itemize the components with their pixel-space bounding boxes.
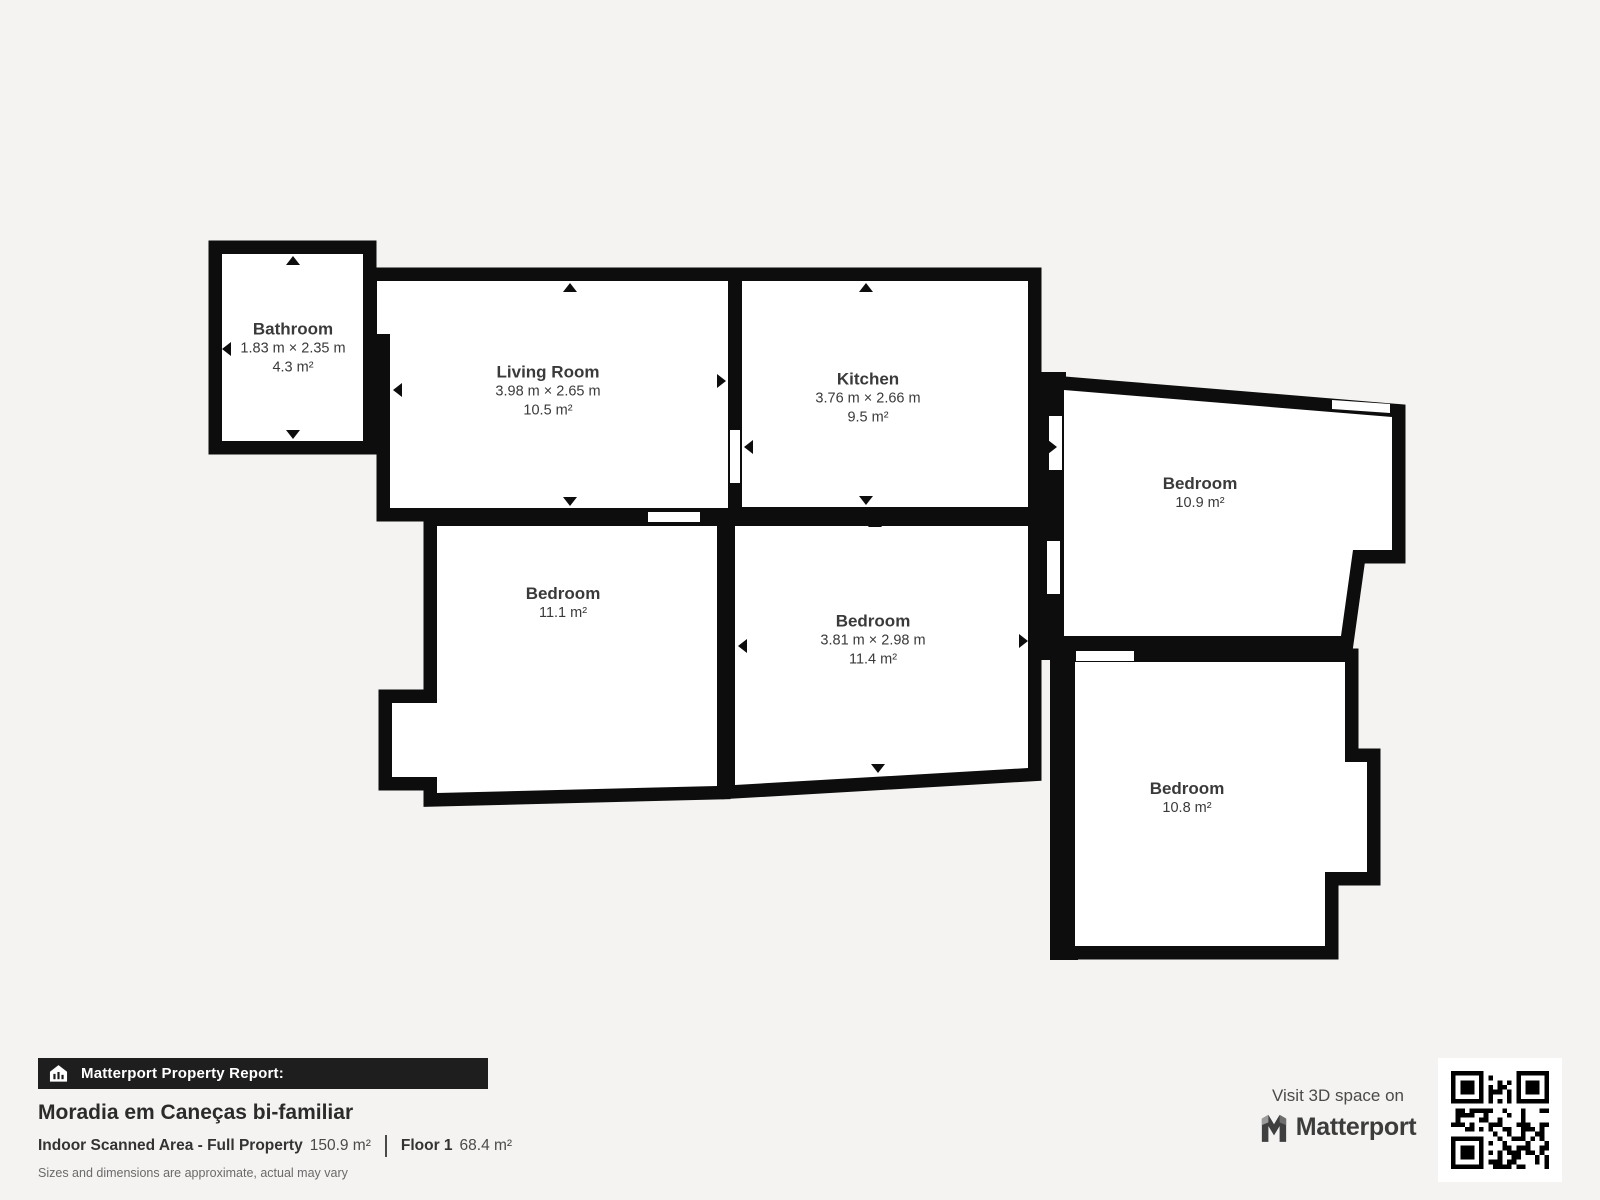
- brand-name: Matterport: [1296, 1113, 1417, 1142]
- room-name: Bedroom: [1163, 473, 1238, 494]
- room-area: 10.8 m²: [1150, 799, 1225, 818]
- matterport-brand: Matterport: [1260, 1111, 1417, 1143]
- report-banner: Matterport Property Report:: [38, 1058, 488, 1089]
- room-area: 11.4 m²: [820, 651, 925, 670]
- room-area: 10.9 m²: [1163, 494, 1238, 513]
- room-label-bathroom: Bathroom 1.83 m × 2.35 m 4.3 m²: [240, 319, 345, 378]
- property-title: Moradia em Caneças bi-familiar: [38, 1101, 512, 1125]
- scanned-area-label: Indoor Scanned Area - Full Property: [38, 1137, 303, 1155]
- room-label-living-room: Living Room 3.98 m × 2.65 m 10.5 m²: [495, 362, 600, 421]
- room-label-bedroom-bottom: Bedroom 10.8 m²: [1150, 778, 1225, 818]
- floor-area-value: 68.4 m²: [460, 1137, 513, 1155]
- room-interiors: [222, 254, 1392, 946]
- room-label-bedroom-middle: Bedroom 3.81 m × 2.98 m 11.4 m²: [820, 611, 925, 670]
- visit-text: Visit 3D space on: [1272, 1086, 1404, 1106]
- disclaimer-text: Sizes and dimensions are approximate, ac…: [38, 1166, 512, 1180]
- qr-code: [1438, 1058, 1562, 1182]
- floorplan: [0, 0, 1600, 1200]
- visit-3d-cta: Visit 3D space on Matterport: [1248, 1086, 1428, 1143]
- room-name: Living Room: [495, 362, 600, 383]
- room-dimensions: 1.83 m × 2.35 m: [240, 340, 345, 359]
- room-name: Bedroom: [526, 583, 601, 604]
- room-area: 9.5 m²: [815, 409, 920, 428]
- room-name: Kitchen: [815, 369, 920, 390]
- home-chart-icon: [49, 1064, 68, 1083]
- room-dimensions: 3.81 m × 2.98 m: [820, 632, 925, 651]
- banner-label: Matterport Property Report:: [81, 1065, 284, 1082]
- room-name: Bedroom: [1150, 778, 1225, 799]
- room-label-kitchen: Kitchen 3.76 m × 2.66 m 9.5 m²: [815, 369, 920, 428]
- qr-pattern: [1451, 1071, 1549, 1169]
- floor-label: Floor 1: [401, 1137, 453, 1155]
- scanned-area-value: 150.9 m²: [310, 1137, 371, 1155]
- room-name: Bathroom: [240, 319, 345, 340]
- room-dimensions: 3.76 m × 2.66 m: [815, 390, 920, 409]
- room-label-bedroom-left: Bedroom 11.1 m²: [526, 583, 601, 623]
- room-dimensions: 3.98 m × 2.65 m: [495, 383, 600, 402]
- report-info: Matterport Property Report: Moradia em C…: [38, 1058, 512, 1180]
- room-name: Bedroom: [820, 611, 925, 632]
- room-area: 11.1 m²: [526, 604, 601, 623]
- stats-divider: [385, 1135, 387, 1157]
- room-area: 10.5 m²: [495, 402, 600, 421]
- matterport-logo-icon: [1260, 1111, 1288, 1143]
- area-stats: Indoor Scanned Area - Full Property 150.…: [38, 1135, 512, 1157]
- room-area: 4.3 m²: [240, 359, 345, 378]
- room-label-bedroom-right: Bedroom 10.9 m²: [1163, 473, 1238, 513]
